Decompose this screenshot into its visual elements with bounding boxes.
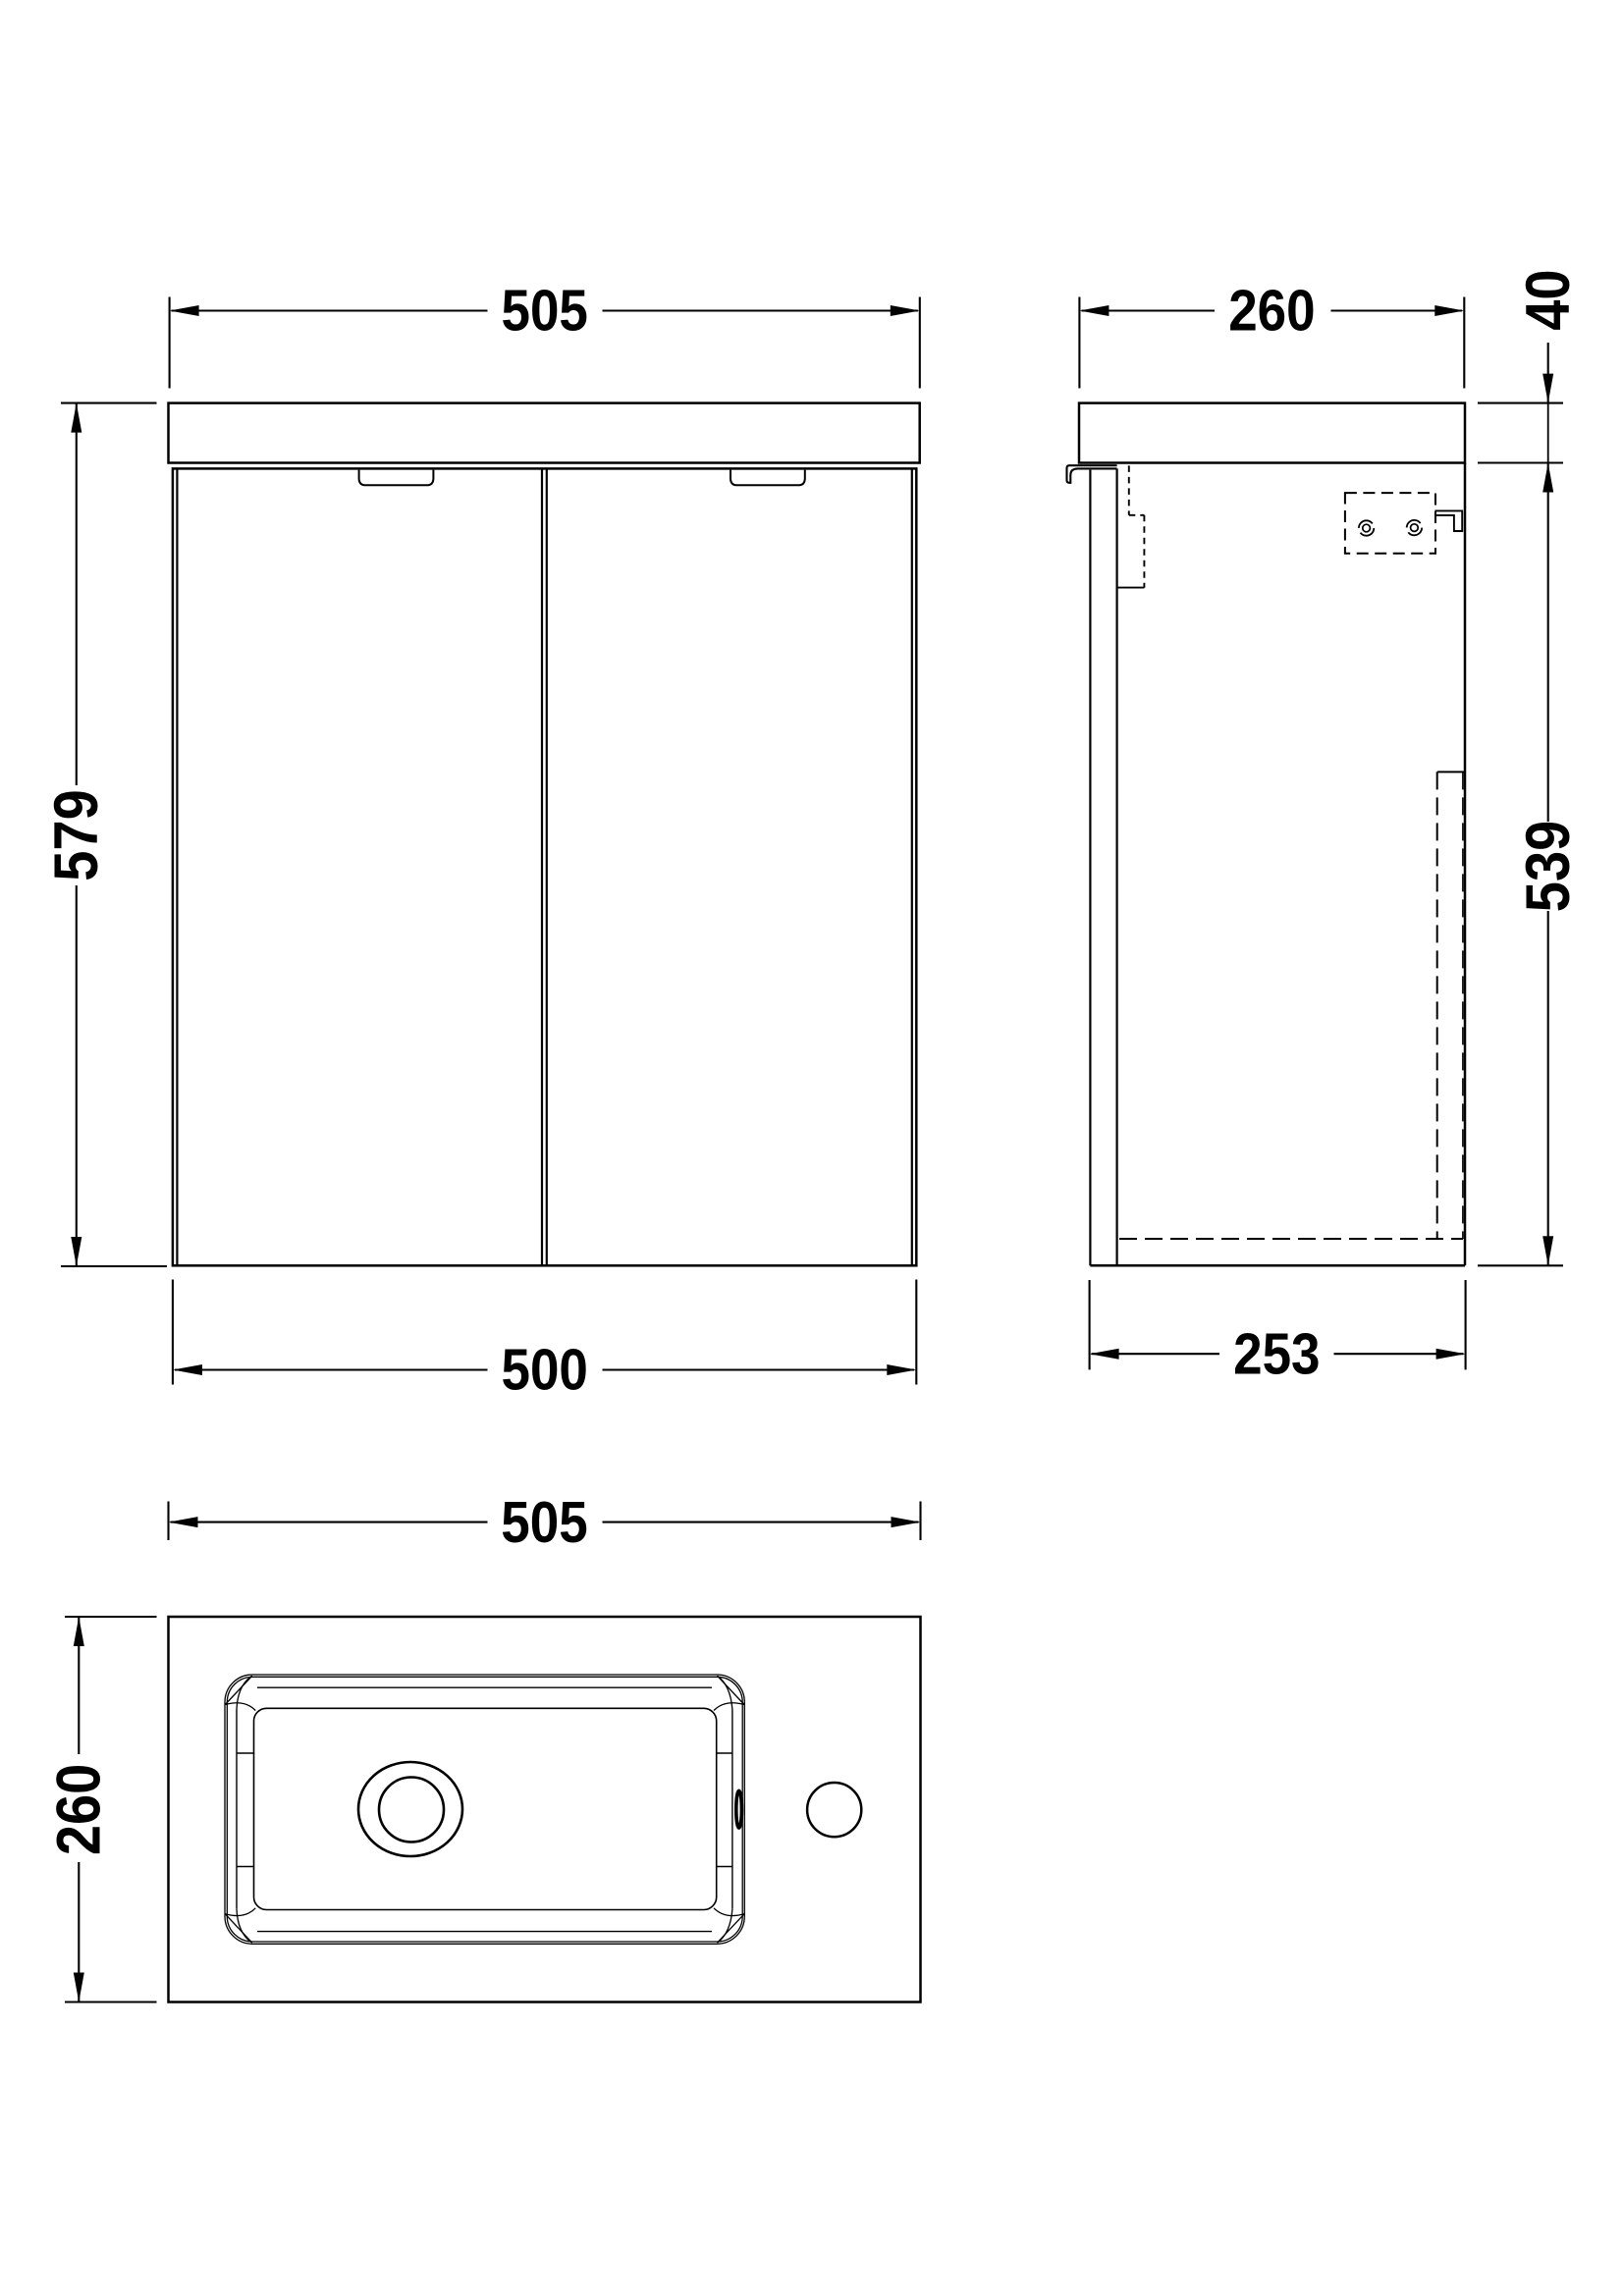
svg-text:260: 260 <box>1228 278 1315 343</box>
svg-text:505: 505 <box>501 278 587 343</box>
svg-text:40: 40 <box>1513 269 1583 330</box>
svg-text:500: 500 <box>501 1337 587 1402</box>
svg-text:505: 505 <box>501 1489 587 1554</box>
svg-text:260: 260 <box>44 1764 114 1855</box>
svg-text:539: 539 <box>1513 821 1583 912</box>
svg-text:253: 253 <box>1233 1321 1320 1386</box>
svg-text:579: 579 <box>41 789 111 881</box>
